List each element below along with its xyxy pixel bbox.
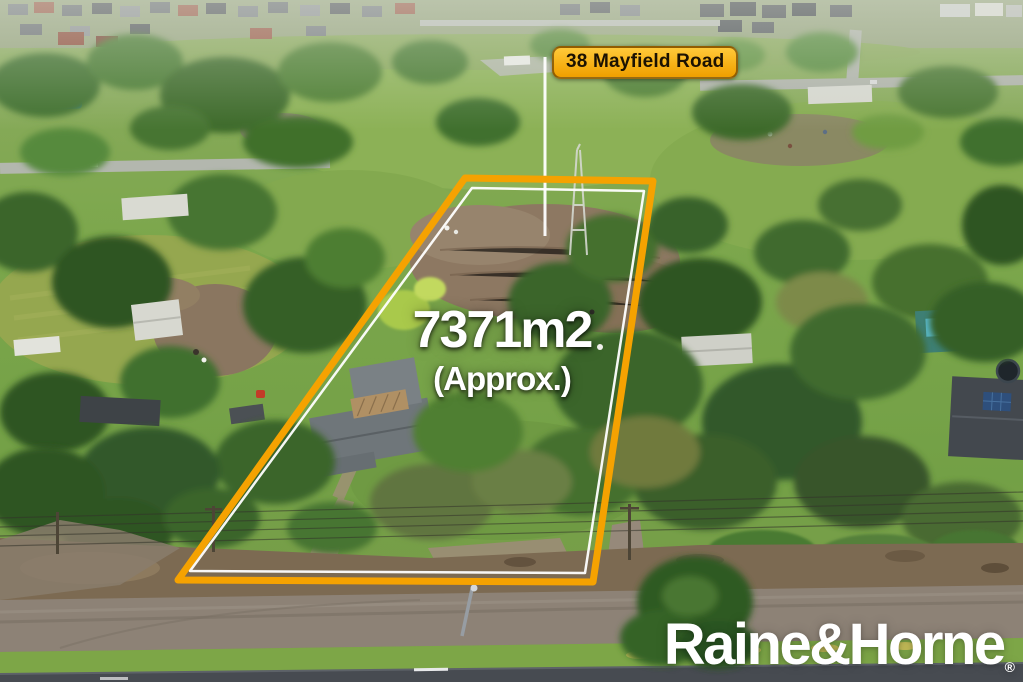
house-left-neighbor	[79, 396, 160, 426]
atmospheric-haze	[0, 0, 1023, 130]
brand-logo: Raine&Horne®	[664, 616, 1015, 674]
area-qualifier: (Approx.)	[352, 360, 652, 398]
house-bottom-right	[948, 376, 1023, 460]
area-value: 7371m2	[352, 303, 652, 358]
shed-white-top-left	[121, 194, 188, 221]
trampoline	[997, 360, 1019, 382]
brand-name: Raine&Horne	[664, 612, 1004, 677]
tractor	[256, 390, 265, 398]
shed-white-left	[131, 299, 183, 341]
listing-photo: 38 Mayfield Road 7371m2 (Approx.) Raine&…	[0, 0, 1023, 682]
area-annotation: 7371m2 (Approx.)	[352, 303, 652, 398]
registered-mark: ®	[1005, 659, 1015, 675]
address-label: 38 Mayfield Road	[552, 46, 738, 79]
